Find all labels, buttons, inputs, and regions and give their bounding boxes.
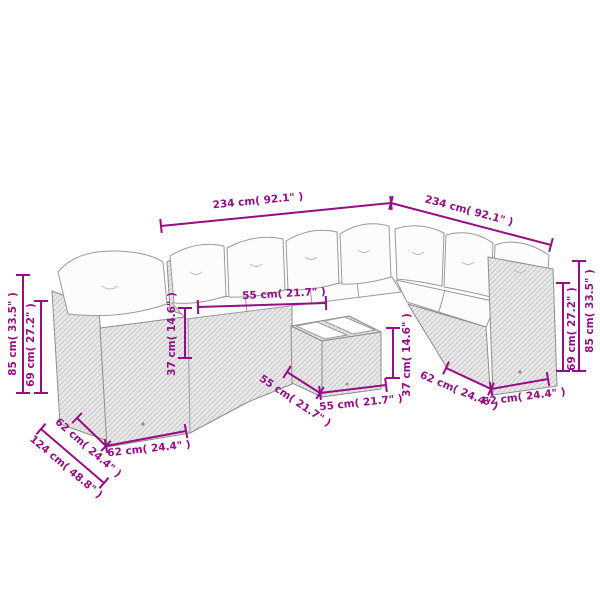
dimension-label-total-height-left: 85 cm( 33.5" ) (7, 292, 19, 376)
furniture-dimension-diagram: 234 cm( 92.1" )234 cm( 92.1" )85 cm( 33.… (0, 0, 600, 600)
screw-dot-right (518, 370, 521, 373)
diagram-canvas: 234 cm( 92.1" )234 cm( 92.1" )85 cm( 33.… (0, 0, 600, 600)
dimension-line (490, 382, 492, 396)
wing-back-cushion-1 (395, 226, 444, 286)
left-corner-back-cushion (58, 251, 167, 316)
dimension-label-back-height-right: 69 cm( 27.2" ) (566, 287, 578, 371)
back-cushion-4 (340, 224, 391, 284)
screw-dot-table (346, 383, 349, 386)
dimension-back-height-left: 69 cm( 27.2" ) (25, 301, 48, 393)
dimension-table-height-right: 37 cm( 14.6" ) (386, 313, 413, 397)
dimension-label-back-height-left: 69 cm( 27.2" ) (25, 303, 37, 387)
dimension-label-back-width-left: 234 cm( 92.1" ) (212, 191, 304, 212)
back-cushion-3 (286, 230, 339, 290)
dimension-back-height-right: 69 cm( 27.2" ) (556, 283, 578, 371)
screw-dot-left (141, 422, 144, 425)
dimension-line (160, 219, 161, 233)
dimension-line (161, 203, 391, 226)
dimension-label-seat-height-left: 37 cm( 14.6" ) (166, 292, 178, 376)
dimension-label-table-height-right: 37 cm( 14.6" ) (401, 313, 413, 397)
dimension-line (385, 378, 387, 392)
dimension-label-total-height-right: 85 cm( 33.5" ) (584, 269, 596, 353)
